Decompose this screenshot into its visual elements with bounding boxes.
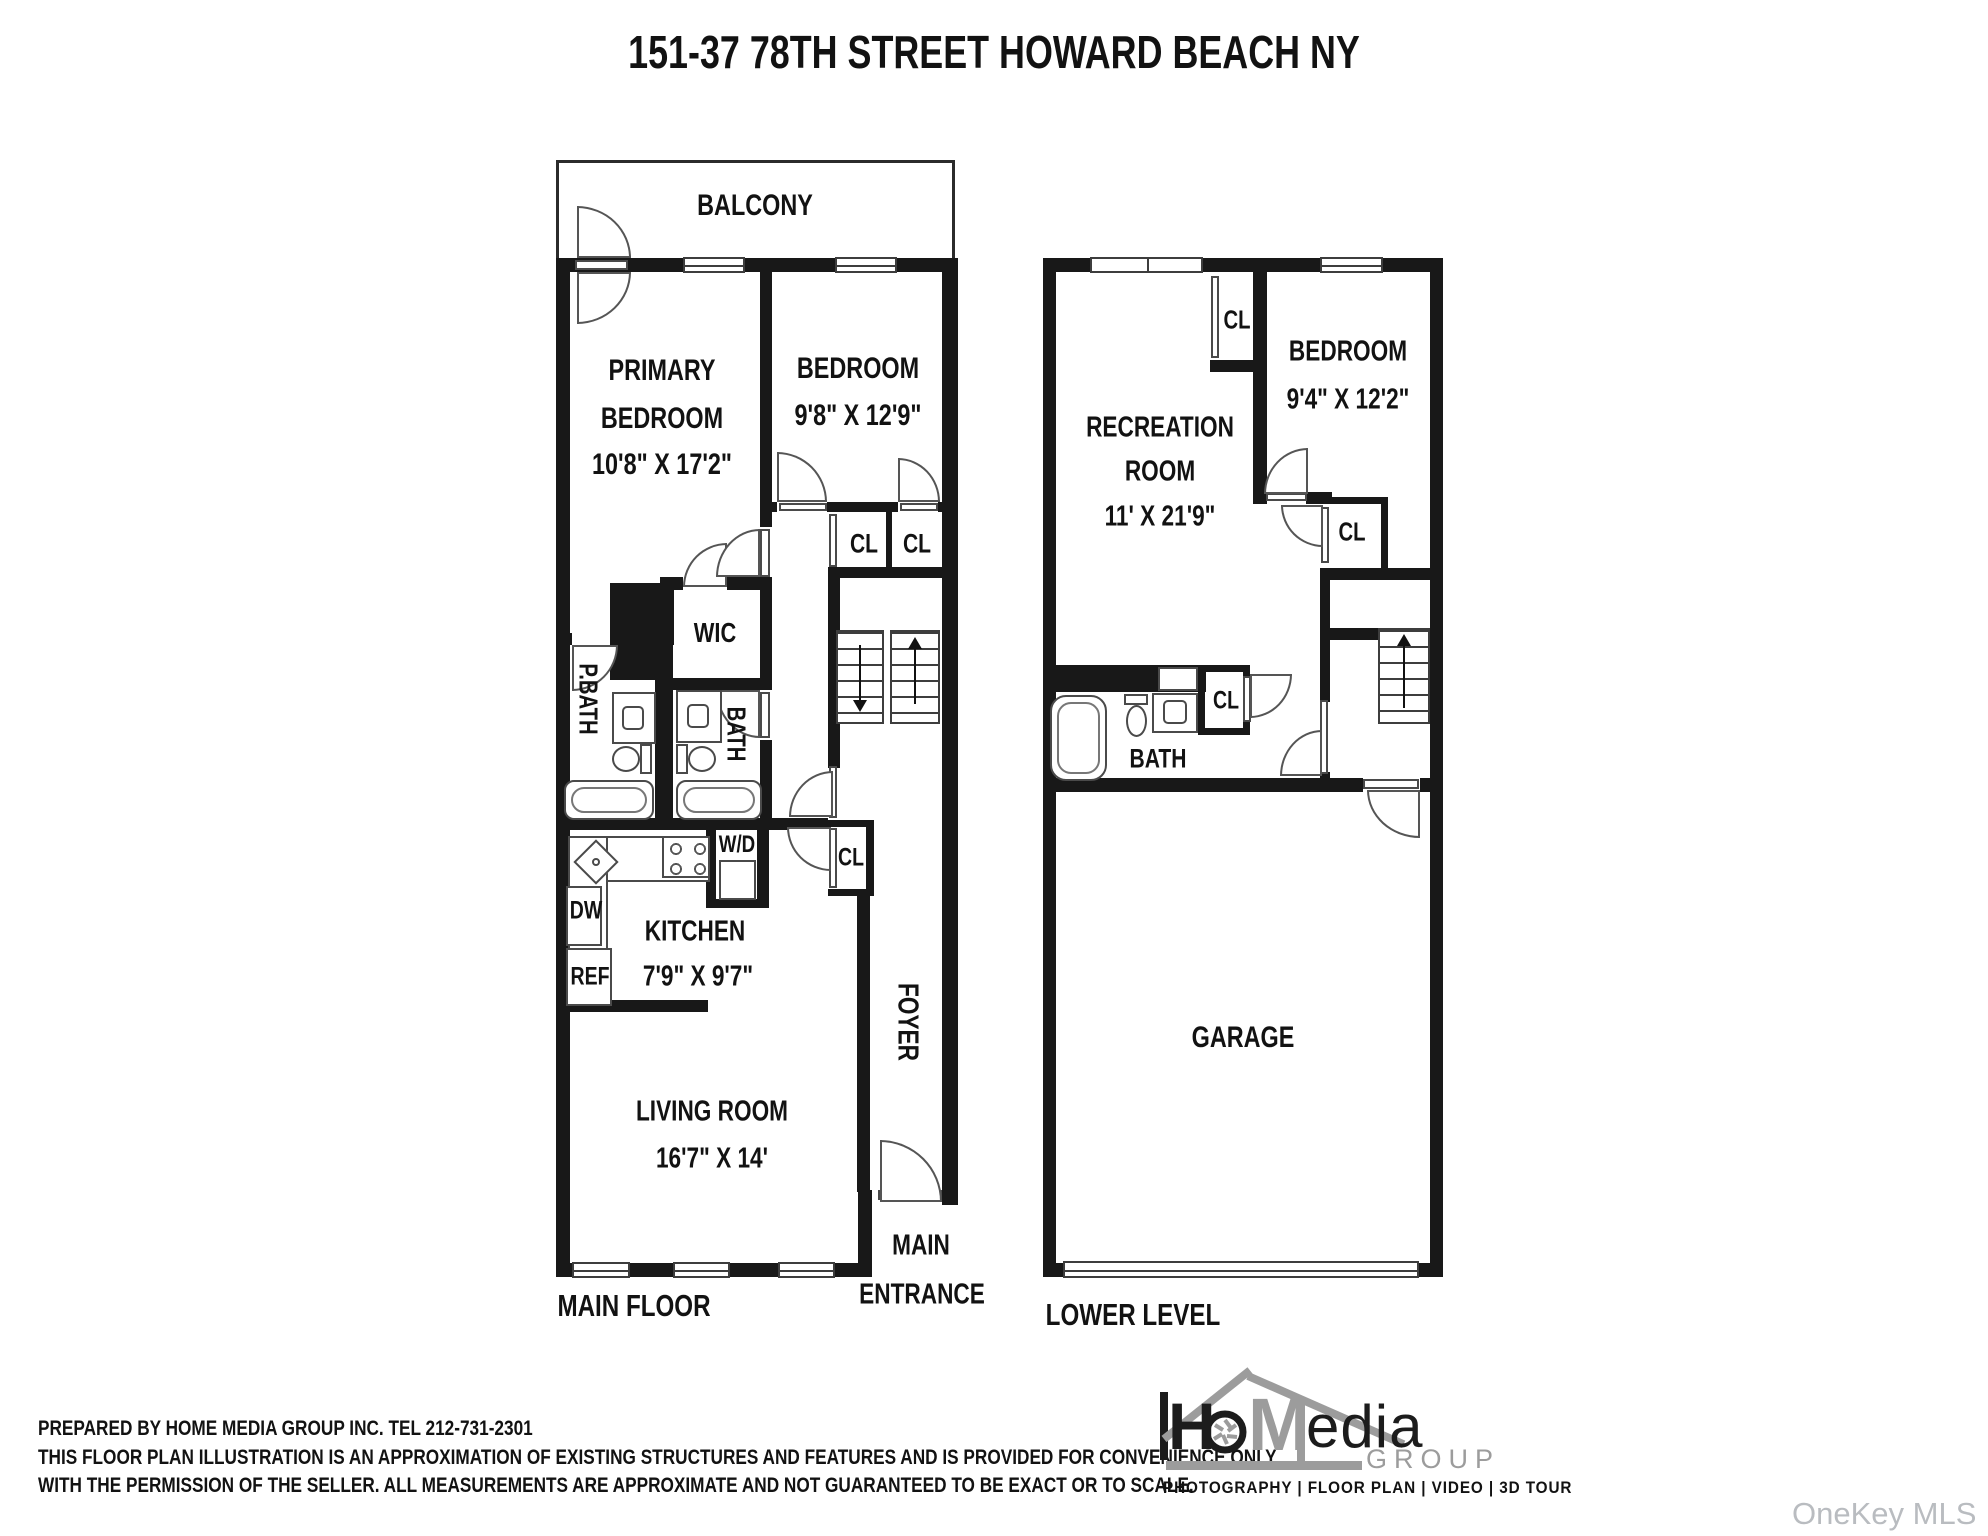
stair-arrow-up xyxy=(908,637,922,649)
room-label-wic: WIC xyxy=(694,617,736,649)
wall xyxy=(886,512,892,570)
logo-letter-m: M xyxy=(1248,1382,1310,1467)
bathtub xyxy=(676,780,762,820)
stair-arrow xyxy=(1403,646,1405,708)
door-arc xyxy=(1280,730,1322,776)
door-arc xyxy=(880,1140,942,1202)
door-arc xyxy=(1367,790,1420,838)
room-label-bedroom: BEDROOM xyxy=(797,352,919,386)
window xyxy=(572,1262,630,1278)
wall xyxy=(655,645,673,830)
room-label-primary-bedroom: PRIMARY xyxy=(608,354,715,388)
wall xyxy=(706,899,769,908)
footer-disclaimer-1: THIS FLOOR PLAN ILLUSTRATION IS AN APPRO… xyxy=(38,1446,1277,1470)
wall xyxy=(1320,568,1443,580)
room-label-closet: CL xyxy=(838,844,864,873)
window xyxy=(1320,257,1383,273)
label-main-entrance: ENTRANCE xyxy=(859,1279,985,1312)
wall xyxy=(760,590,772,680)
sink-cutout xyxy=(1158,667,1198,691)
room-label-garage: GARAGE xyxy=(1192,1021,1295,1055)
wall xyxy=(1320,580,1330,702)
room-label-recreation: ROOM xyxy=(1125,456,1195,489)
wall xyxy=(610,583,674,645)
wall xyxy=(1198,728,1250,735)
wall xyxy=(1253,270,1267,504)
wall xyxy=(556,633,572,645)
room-label-closet: CL xyxy=(1338,517,1365,548)
door-arc xyxy=(777,452,827,502)
logo-house-left-wall xyxy=(1160,1392,1168,1460)
door-arc xyxy=(577,272,631,324)
door-arc xyxy=(1250,674,1292,718)
door-leaf xyxy=(1266,493,1307,501)
wall xyxy=(727,577,772,590)
door-leaf xyxy=(1211,276,1219,358)
sink-basin xyxy=(622,706,644,730)
wall xyxy=(1330,628,1378,640)
room-label-refrigerator: REF xyxy=(571,963,610,992)
door-arc xyxy=(716,529,760,577)
room-label-bedroom: BEDROOM xyxy=(1289,336,1407,369)
room-label-closet: CL xyxy=(1223,305,1250,336)
door-arc xyxy=(789,771,833,817)
room-label-closet: CL xyxy=(1213,687,1239,716)
door-leaf xyxy=(1363,779,1419,789)
room-dims-bedroom: 9'4" X 12'2" xyxy=(1287,384,1410,417)
room-label-bath: BATH xyxy=(1130,744,1187,775)
page-title: 151-37 78TH STREET HOWARD BEACH NY xyxy=(628,25,1360,79)
toilet-bowl xyxy=(688,746,716,772)
watermark-onekey-mls: OneKey MLS xyxy=(1792,1496,1976,1532)
window xyxy=(835,257,897,273)
door-leaf xyxy=(575,260,628,270)
wall xyxy=(938,502,944,512)
door-arc xyxy=(787,827,831,871)
wall xyxy=(760,502,777,512)
window xyxy=(1090,257,1203,273)
wall xyxy=(1420,778,1443,792)
wall xyxy=(858,1190,872,1277)
label-main-entrance: MAIN xyxy=(892,1230,950,1263)
room-dims-bedroom: 9'8" X 12'9" xyxy=(794,399,921,433)
wall xyxy=(1430,258,1443,1277)
logo-group: GROUP xyxy=(1366,1444,1500,1475)
floor-plan-page: 151-37 78TH STREET HOWARD BEACH NY xyxy=(0,0,1988,1536)
bathtub xyxy=(1050,695,1107,781)
door-arc xyxy=(1281,505,1323,547)
door-leaf xyxy=(760,529,770,577)
room-label-balcony: BALCONY xyxy=(697,189,813,223)
room-label-closet: CL xyxy=(903,529,931,560)
kitchen-sink-drain xyxy=(592,858,600,866)
room-label-primary-bedroom: BEDROOM xyxy=(601,402,723,436)
toilet-tank xyxy=(676,744,688,774)
toilet-bowl xyxy=(612,746,640,772)
wall xyxy=(1381,497,1388,575)
wall xyxy=(857,892,870,1192)
logo-tagline: PHOTOGRAPHY | FLOOR PLAN | VIDEO | 3D TO… xyxy=(1163,1478,1572,1498)
wall xyxy=(827,502,898,512)
floor-label-lower: LOWER LEVEL xyxy=(1046,1297,1221,1333)
room-dims-kitchen: 7'9" X 9'7" xyxy=(643,961,753,994)
window xyxy=(683,257,745,273)
footer-prepared-by: PREPARED BY HOME MEDIA GROUP INC. TEL 21… xyxy=(38,1417,533,1441)
room-label-bath: BATH xyxy=(721,707,752,762)
door-leaf xyxy=(829,514,837,567)
door-arc xyxy=(1264,448,1308,494)
garage-door xyxy=(1063,1261,1419,1278)
door-leaf xyxy=(779,503,827,511)
stair-arrow xyxy=(859,645,861,701)
room-label-kitchen: KITCHEN xyxy=(645,916,746,949)
room-dims-living-room: 16'7" X 14' xyxy=(656,1143,768,1176)
room-label-recreation: RECREATION xyxy=(1086,412,1234,445)
door-arc xyxy=(898,458,940,502)
bathtub xyxy=(564,780,654,820)
floor-label-main: MAIN FLOOR xyxy=(557,1288,710,1324)
room-label-washer-dryer: W/D xyxy=(719,831,755,859)
room-dims-recreation: 11' X 21'9" xyxy=(1105,501,1216,534)
window xyxy=(673,1262,730,1278)
wall xyxy=(757,828,769,908)
wall xyxy=(1320,497,1387,504)
washer-dryer-box xyxy=(719,860,756,900)
stair-arrow-down xyxy=(853,700,867,712)
sink-basin xyxy=(687,704,709,728)
wall xyxy=(556,258,570,1277)
footer-disclaimer-2: WITH THE PERMISSION OF THE SELLER. ALL M… xyxy=(38,1474,1194,1498)
stair-arrow xyxy=(914,648,916,704)
stair-arrow-up xyxy=(1397,634,1411,646)
room-label-living-room: LIVING ROOM xyxy=(636,1096,788,1129)
wall xyxy=(942,258,958,1205)
camera-lens-icon xyxy=(1203,1410,1247,1454)
room-dims-primary-bedroom: 10'8" X 17'2" xyxy=(592,448,732,482)
stove xyxy=(662,836,710,878)
room-label-closet: CL xyxy=(850,529,878,560)
door-leaf xyxy=(760,692,770,738)
toilet-tank xyxy=(1124,694,1148,705)
toilet-bowl xyxy=(1126,705,1147,737)
toilet-tank xyxy=(640,744,652,774)
sink-basin xyxy=(1163,700,1187,724)
wall xyxy=(1198,665,1205,735)
room-label-primary-bath: P.BATH xyxy=(573,663,604,734)
wall xyxy=(866,820,874,896)
window xyxy=(778,1262,835,1278)
room-label-foyer: FOYER xyxy=(891,983,924,1061)
room-label-dishwasher: DW xyxy=(570,897,602,926)
wall xyxy=(760,270,772,527)
door-leaf xyxy=(900,503,938,511)
